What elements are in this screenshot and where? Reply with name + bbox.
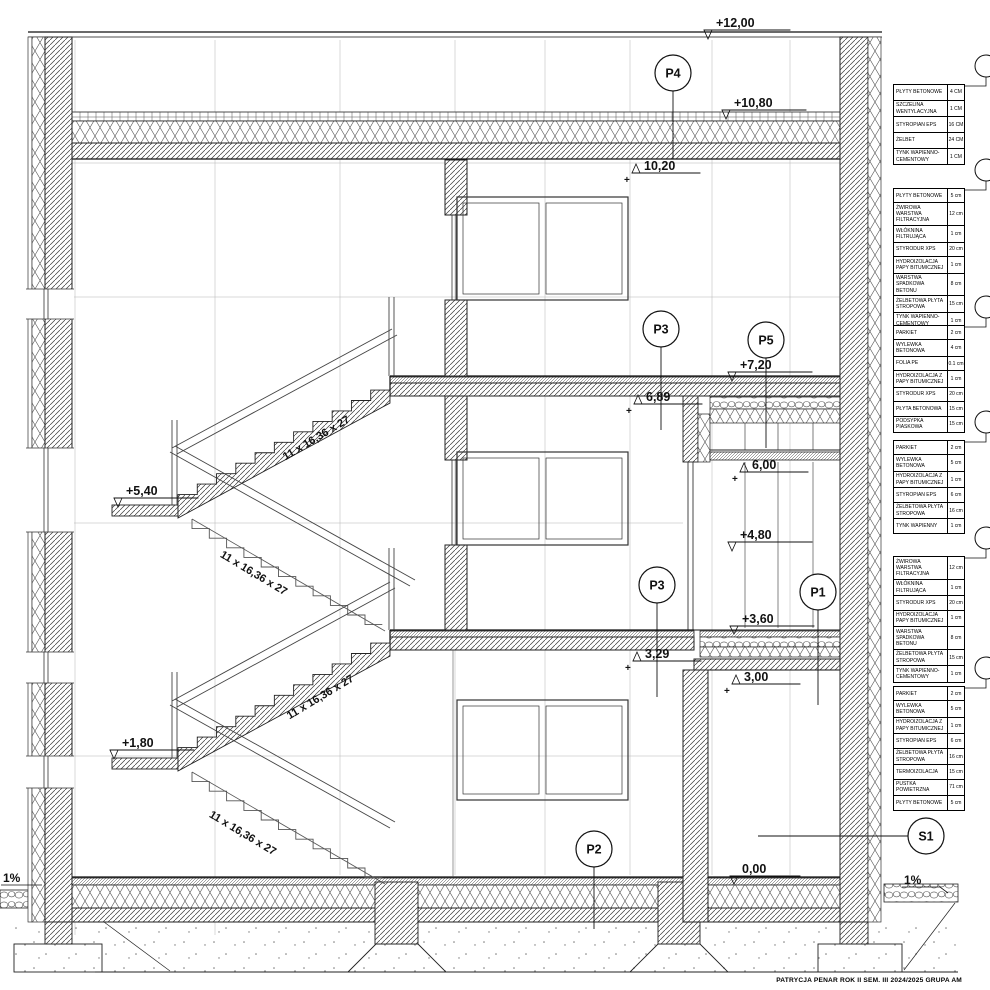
material-row: WYLEWKA BETONOWA4 cm [894,339,964,356]
marker-p1: P1 [810,586,825,600]
material-row: PARKIET2 cm [894,441,964,454]
material-thickness: 5 cm [947,701,964,717]
material-row: FOLIA PE0.1 cm [894,356,964,370]
material-thickness: 15 cm [947,402,964,415]
material-name: WŁÓKNINA FILTRUJĄCA [894,226,947,242]
material-name: STYRODUR XPS [894,243,947,256]
level-marker-480: +4,80 [728,528,812,551]
svg-text:+7,20: +7,20 [740,358,772,372]
material-name: HYDROIZOLACJA Z PAPY BITUMICZNEJ [894,472,947,488]
material-thickness: 1 cm [947,257,964,273]
material-name: PUSTKA POWIETRZNA [894,780,947,796]
material-name: HYDROIZOLACJA Z PAPY BITUMICZNEJ [894,718,947,734]
material-name: ŻELBETOWA PŁYTA STROPOWA [894,296,947,312]
material-thickness: 2 cm [947,441,964,454]
material-row: STYRODUR XPS20 cm [894,242,964,256]
material-thickness: 6 cm [947,734,964,747]
material-table-green-roof: PŁYTY BETONOWE5 cmŻWIROWA WARSTWA FILTRA… [893,188,965,329]
interior-wall-mid [445,160,467,877]
material-row: HYDROIZOLACJA Z PAPY BITUMICZNEJ1 cm [894,370,964,387]
material-thickness: 1 cm [947,371,964,387]
landing-180 [112,758,178,769]
material-thickness: 4 CM [947,85,964,100]
material-name: TYNK WAPIENNY [894,519,947,532]
material-thickness: 20 cm [947,243,964,256]
material-row: ŻELBETOWA PŁYTA STROPOWA15 cm [894,295,964,312]
material-thickness: 71 cm [947,780,964,796]
material-thickness: 1 CM [947,101,964,117]
material-table-vented-floor: PARKIET2 cmWYLEWKA BETONOWA5 cmHYDROIZOL… [893,686,965,811]
material-name: STYRODUR XPS [894,388,947,401]
material-name: ŻELBETOWA PŁYTA STROPOWA [894,503,947,519]
material-name: HYDROIZOLACJA PAPY BITUMICZNEJ [894,257,947,273]
svg-text:10,20: 10,20 [644,159,675,173]
svg-text:+12,00: +12,00 [716,16,755,30]
material-thickness: 16 cm [947,749,964,765]
material-name: STYROPIAN EPS [894,734,947,747]
material-name: PŁYTY BETONOWE [894,189,947,202]
material-name: PARKIET [894,441,947,454]
material-row: TERMOIZOLACJA15 cm [894,764,964,778]
material-thickness: 15 cm [947,296,964,312]
material-table-roof: PŁYTY BETONOWE4 CMSZCZELINA WENTYLACYJNA… [893,84,965,165]
material-thickness: 1 cm [947,472,964,488]
material-row: STYRODUR XPS20 cm [894,595,964,609]
slope-label-right: 1% [904,873,922,887]
material-row: SZCZELINA WENTYLACYJNA1 CM [894,100,964,117]
material-name: TERMOIZOLACJA [894,765,947,778]
material-name: STYROPIAN EPS [894,488,947,501]
svg-text:+10,80: +10,80 [734,96,773,110]
material-row: PŁYTY BETONOWE5 cm [894,189,964,202]
marker-s1: S1 [918,830,933,844]
svg-text:+4,80: +4,80 [740,528,772,542]
material-row: TYNK WAPIENNY1 cm [894,518,964,532]
slab-720 [390,376,868,396]
material-name: PODSYPKA PIASKOWA [894,417,947,433]
marker-p3-upper: P3 [653,323,668,337]
material-name: TYNK WAPIENNO-CEMENTOWY [894,149,947,165]
stair-flight-cut [178,643,390,771]
svg-text:6,89: 6,89 [646,390,670,404]
material-thickness: 15 cm [947,650,964,666]
material-name: STYROPIAN EPS [894,117,947,132]
material-thickness: 12 cm [947,203,964,225]
material-thickness: 1 cm [947,611,964,627]
staircase: 11 x 16,36 x 27 11 x 16,36 x 27 11 x 16,… [112,297,415,884]
table-ref-circles [964,55,990,688]
material-name: PŁYTY BETONOWE [894,85,947,100]
material-name: WARSTWA SPADKOWA BETONU [894,274,947,296]
interior-wall-right [683,670,708,922]
pavement-left [0,890,28,908]
level-marker-600: 6,00 + [732,458,808,485]
material-row: HYDROIZOLACJA Z PAPY BITUMICZNEJ1 cm [894,717,964,734]
material-row: ŻELBETOWA PŁYTA STROPOWA15 cm [894,649,964,666]
material-name: PŁYTY BETONOWE [894,796,947,809]
slope-label-left: 1% [3,871,21,885]
svg-text:3,00: 3,00 [744,670,768,684]
material-name: STYRODUR XPS [894,596,947,609]
material-row: ŻELBETOWA PŁYTA STROPOWA16 cm [894,748,964,765]
material-name: FOLIA PE [894,357,947,370]
material-row: STYROPIAN EPS6 cm [894,487,964,501]
section-markers: P4 P3 P5 P3 P1 P2 S1 [576,55,944,929]
material-name: ŻELBETOWA PŁYTA STROPOWA [894,650,947,666]
material-thickness: 16 cm [947,503,964,519]
material-name: ŻWIROWA WARSTWA FILTRACYJNA [894,557,947,579]
title-block: PATRYCJA PENAR ROK II SEM. III 2024/2025… [690,977,962,984]
material-row: PŁYTY BETONOWE4 CM [894,85,964,100]
stair-flight-outline [192,519,382,625]
material-name: ŻELBETOWA PŁYTA STROPOWA [894,749,947,765]
material-row: PARKIET2 cm [894,687,964,700]
material-row: STYROPIAN EPS16 CM [894,116,964,132]
material-thickness: 8 cm [947,274,964,296]
svg-text:+: + [626,406,632,417]
material-name: WYLEWKA BETONOWA [894,701,947,717]
material-row: WARSTWA SPADKOWA BETONU8 cm [894,273,964,296]
material-row: TYNK WAPIENNO-CEMENTOWY1 cm [894,665,964,682]
material-row: PŁYTA BETONOWA15 cm [894,401,964,415]
left-wall [26,37,74,944]
material-thickness: 4 cm [947,340,964,356]
material-row: WŁÓKNINA FILTRUJĄCA1 cm [894,225,964,242]
svg-text:+: + [625,663,631,674]
material-name: PARKIET [894,326,947,339]
material-row: WYLEWKA BETONOWA5 cm [894,454,964,471]
material-thickness: 1 CM [947,149,964,165]
lantern-box [683,396,852,462]
material-row: ŻELBETOWA PŁYTA STROPOWA16 cm [894,502,964,519]
material-row: ŻWIROWA WARSTWA FILTRACYJNA12 cm [894,557,964,579]
material-row: HYDROIZOLACJA PAPY BITUMICZNEJ1 cm [894,610,964,627]
material-thickness: 1 cm [947,226,964,242]
material-row: WYLEWKA BETONOWA5 cm [894,700,964,717]
material-row: PODSYPKA PIASKOWA15 cm [894,416,964,433]
material-thickness: 5 cm [947,455,964,471]
material-thickness: 8 cm [947,627,964,649]
material-thickness: 6 cm [947,488,964,501]
material-row: STYROPIAN EPS6 cm [894,733,964,747]
material-name: WŁÓKNINA FILTRUJĄCA [894,580,947,596]
marker-p4: P4 [665,67,680,81]
material-thickness: 20 cm [947,388,964,401]
right-wall [840,37,881,944]
material-name: PARKIET [894,687,947,700]
svg-text:+: + [624,175,630,186]
material-thickness: 12 cm [947,557,964,579]
material-thickness: 16 CM [947,117,964,132]
material-name: ŻWIROWA WARSTWA FILTRACYJNA [894,203,947,225]
material-name: PŁYTA BETONOWA [894,402,947,415]
material-name: WYLEWKA BETONOWA [894,340,947,356]
svg-text:+5,40: +5,40 [126,484,158,498]
material-thickness: 20 cm [947,596,964,609]
level-marker-1200: +12,00 [704,16,790,39]
material-row: WŁÓKNINA FILTRUJĄCA1 cm [894,579,964,596]
marker-p5: P5 [758,334,773,348]
material-thickness: 1 cm [947,519,964,532]
material-table-ground-floor: PARKIET2 cmWYLEWKA BETONOWA4 cmFOLIA PE0… [893,325,965,433]
material-thickness: 5 cm [947,189,964,202]
terrace-glazing [688,462,813,630]
material-name: WYLEWKA BETONOWA [894,455,947,471]
material-row: ŻELBET24 CM [894,132,964,148]
svg-text:+: + [732,474,738,485]
material-name: WARSTWA SPADKOWA BETONU [894,627,947,649]
interior-window-frames [457,197,628,800]
svg-text:0,00: 0,00 [742,862,766,876]
material-thickness: 15 cm [947,765,964,778]
svg-text:+1,80: +1,80 [122,736,154,750]
material-row: HYDROIZOLACJA Z PAPY BITUMICZNEJ1 cm [894,471,964,488]
material-thickness: 2 cm [947,687,964,700]
material-thickness: 1 cm [947,718,964,734]
material-table-terrace: ŻWIROWA WARSTWA FILTRACYJNA12 cmWŁÓKNINA… [893,556,965,683]
level-marker-300: 3,00 + [724,670,800,697]
architectural-section-sheet: 11 x 16,36 x 27 11 x 16,36 x 27 11 x 16,… [0,0,990,990]
material-row: HYDROIZOLACJA PAPY BITUMICZNEJ1 cm [894,256,964,273]
material-name: ŻELBET [894,133,947,148]
material-row: PUSTKA POWIETRZNA71 cm [894,779,964,796]
material-name: TYNK WAPIENNO-CEMENTOWY [894,666,947,682]
material-name: HYDROIZOLACJA Z PAPY BITUMICZNEJ [894,371,947,387]
material-row: ŻWIROWA WARSTWA FILTRACYJNA12 cm [894,202,964,225]
material-row: WARSTWA SPADKOWA BETONU8 cm [894,626,964,649]
material-thickness: 2 cm [947,326,964,339]
material-name: HYDROIZOLACJA PAPY BITUMICZNEJ [894,611,947,627]
material-row: PŁYTY BETONOWE5 cm [894,795,964,809]
svg-text:6,00: 6,00 [752,458,776,472]
svg-text:+: + [724,686,730,697]
material-thickness: 0.1 cm [947,357,964,370]
marker-p3-lower: P3 [649,579,664,593]
material-thickness: 5 cm [947,796,964,809]
material-thickness: 1 cm [947,666,964,682]
material-row: TYNK WAPIENNO-CEMENTOWY1 CM [894,148,964,165]
material-thickness: 15 cm [947,417,964,433]
material-row: PARKIET2 cm [894,326,964,339]
material-row: STYRODUR XPS20 cm [894,387,964,401]
material-name: SZCZELINA WENTYLACYJNA [894,101,947,117]
material-table-interior-floor: PARKIET2 cmWYLEWKA BETONOWA5 cmHYDROIZOL… [893,440,965,534]
material-thickness: 24 CM [947,133,964,148]
marker-p2: P2 [586,843,601,857]
material-thickness: 1 cm [947,580,964,596]
landing-540 [112,505,178,516]
svg-text:+3,60: +3,60 [742,612,774,626]
section-drawing: 11 x 16,36 x 27 11 x 16,36 x 27 11 x 16,… [0,0,990,990]
